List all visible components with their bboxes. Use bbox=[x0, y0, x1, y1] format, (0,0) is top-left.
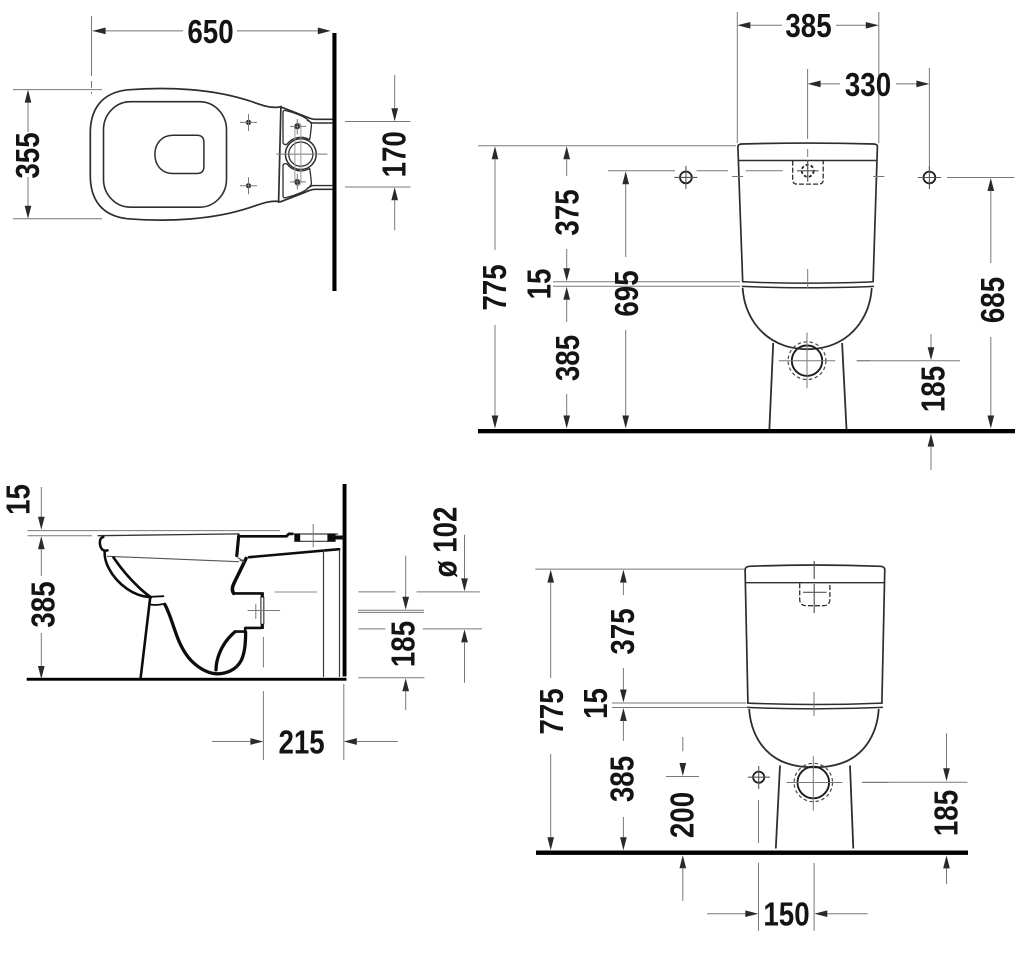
svg-text:355: 355 bbox=[10, 132, 47, 178]
svg-text:ø 102: ø 102 bbox=[427, 507, 464, 578]
svg-text:385: 385 bbox=[604, 756, 641, 802]
svg-text:695: 695 bbox=[609, 270, 646, 316]
svg-text:15: 15 bbox=[521, 269, 558, 300]
svg-text:375: 375 bbox=[549, 189, 586, 235]
svg-text:185: 185 bbox=[385, 621, 422, 667]
svg-text:330: 330 bbox=[845, 67, 891, 104]
svg-text:185: 185 bbox=[928, 790, 965, 836]
svg-text:185: 185 bbox=[915, 366, 952, 412]
svg-text:775: 775 bbox=[534, 688, 571, 734]
svg-text:215: 215 bbox=[278, 724, 324, 761]
svg-text:775: 775 bbox=[477, 264, 514, 310]
svg-text:685: 685 bbox=[975, 277, 1012, 323]
svg-text:200: 200 bbox=[664, 792, 701, 838]
svg-text:385: 385 bbox=[550, 335, 587, 381]
svg-text:15: 15 bbox=[0, 484, 37, 515]
svg-text:650: 650 bbox=[187, 14, 233, 51]
svg-text:170: 170 bbox=[376, 131, 413, 177]
svg-text:375: 375 bbox=[605, 608, 642, 654]
svg-text:385: 385 bbox=[785, 8, 831, 45]
svg-text:150: 150 bbox=[763, 896, 809, 933]
svg-text:385: 385 bbox=[25, 581, 62, 627]
svg-text:15: 15 bbox=[578, 688, 615, 719]
